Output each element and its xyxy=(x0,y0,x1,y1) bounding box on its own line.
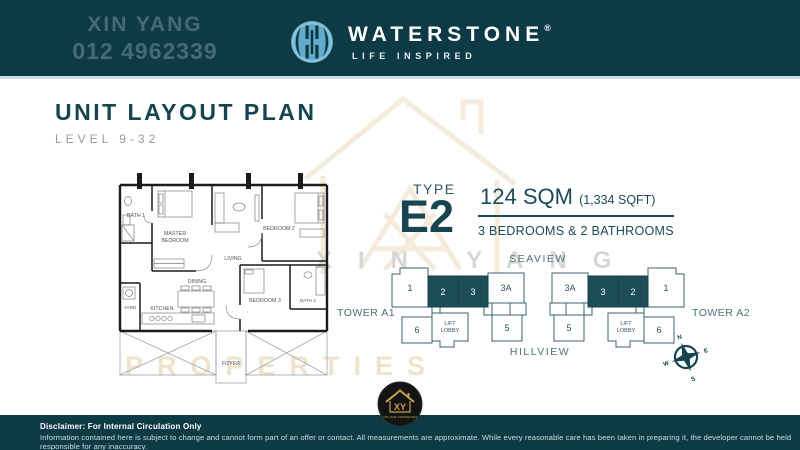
compass-west: W xyxy=(663,361,671,369)
unit-type-code: E2 xyxy=(399,191,454,243)
badge-caption: XIN YANG PROPERTIES xyxy=(383,415,417,419)
room-label-bedroom3: BEDROOM 3 xyxy=(249,298,281,304)
room-label-bath2: BATH 2 xyxy=(300,298,316,303)
floor-plan: BATH 1 MASTER BEDROOM LIVING BEDROOM 2 D… xyxy=(112,167,336,401)
brand-tagline: LIFE INSPIRED xyxy=(352,51,551,61)
unit-number: 5 xyxy=(504,323,509,333)
room-label-master-2: BEDROOM xyxy=(161,238,188,244)
lift-lobby-label: LOBBY xyxy=(441,328,460,334)
unit-area-sqft: (1,334 SQFT) xyxy=(579,193,655,207)
room-label-living: LIVING xyxy=(224,256,241,262)
tower-a1-name: TOWER A1 xyxy=(337,307,395,319)
tower-a2-name: TOWER A2 xyxy=(692,307,750,319)
room-label-bath1: BATH 1 xyxy=(127,213,145,219)
lift-lobby-label: LIFT xyxy=(620,321,632,327)
unit-number-highlighted: 3 xyxy=(600,287,605,297)
unit-number: 1 xyxy=(407,283,412,293)
compass-north: N xyxy=(677,334,683,341)
registered-mark: ® xyxy=(544,23,551,33)
door-swings xyxy=(144,215,262,319)
agent-watermark: XIN YANG 012 4962339 xyxy=(35,13,255,65)
room-label-bedroom2: BEDROOM 2 xyxy=(263,226,295,232)
unit-number: 5 xyxy=(566,323,571,333)
unit-bedrooms: 3 BEDROOMS & 2 BATHROOMS xyxy=(478,217,674,238)
agent-name: XIN YANG xyxy=(35,13,255,38)
room-label-kitchen: KITCHEN xyxy=(150,306,173,312)
title-block: UNIT LAYOUT PLAN LEVEL 9-32 xyxy=(55,99,317,146)
wall-columns xyxy=(137,173,303,189)
unit-area-sqm: 124 SQM xyxy=(480,184,573,209)
content-area: XIN YANG PROPERTIES UNIT LAYOUT PLAN LEV… xyxy=(0,79,800,415)
unit-number: 3A xyxy=(564,283,575,293)
room-label-master-1: MASTER xyxy=(164,231,186,237)
page-title: UNIT LAYOUT PLAN xyxy=(55,99,317,126)
agency-badge-icon: XY XIN YANG PROPERTIES xyxy=(377,381,423,427)
unit-number-highlighted: 2 xyxy=(440,287,445,297)
unit-area: 124 SQM (1,334 SQFT) xyxy=(478,184,674,217)
brand-wordmark: WATERSTONE xyxy=(348,23,544,46)
compass-east: E xyxy=(703,348,709,355)
compass-icon: N E S W xyxy=(660,329,712,383)
room-label-yard: YARD xyxy=(124,305,137,310)
tower-a1-highlighted-units xyxy=(428,276,488,307)
unit-number: 6 xyxy=(414,325,419,335)
disclaimer-text: Information contained here is subject to… xyxy=(40,433,800,450)
compass-south: S xyxy=(691,376,697,383)
room-label-foyer: FOYER xyxy=(222,361,240,367)
lift-lobby-label: LOBBY xyxy=(617,328,636,334)
brochure-page: XIN YANG 012 4962339 WATERSTONE® L xyxy=(0,0,800,450)
brand-name: WATERSTONE® xyxy=(348,23,551,47)
brand-lockup: WATERSTONE® LIFE INSPIRED xyxy=(289,19,551,65)
unit-specs: 124 SQM (1,334 SQFT) 3 BEDROOMS & 2 BATH… xyxy=(478,184,674,238)
unit-number-highlighted: 2 xyxy=(630,287,635,297)
brand-text: WATERSTONE® LIFE INSPIRED xyxy=(348,23,551,61)
room-label-dining: DINING xyxy=(188,279,207,285)
unit-number-highlighted: 3 xyxy=(470,287,475,297)
tower-a2-highlighted-units xyxy=(588,276,648,307)
lift-lobby-label: LIFT xyxy=(444,321,456,327)
agent-phone: 012 4962339 xyxy=(35,38,255,65)
tower-a1-diagram: 1 2 3 3A 6 LIFT LOBBY 5 xyxy=(388,260,528,348)
balcony-outlines xyxy=(120,331,327,383)
waterstone-logo-icon xyxy=(289,19,335,65)
unit-number: 1 xyxy=(663,283,668,293)
unit-number: 3A xyxy=(500,283,511,293)
header-bar: XIN YANG 012 4962339 WATERSTONE® L xyxy=(0,0,800,76)
badge-monogram: XY xyxy=(394,402,406,412)
level-range: LEVEL 9-32 xyxy=(55,132,317,146)
